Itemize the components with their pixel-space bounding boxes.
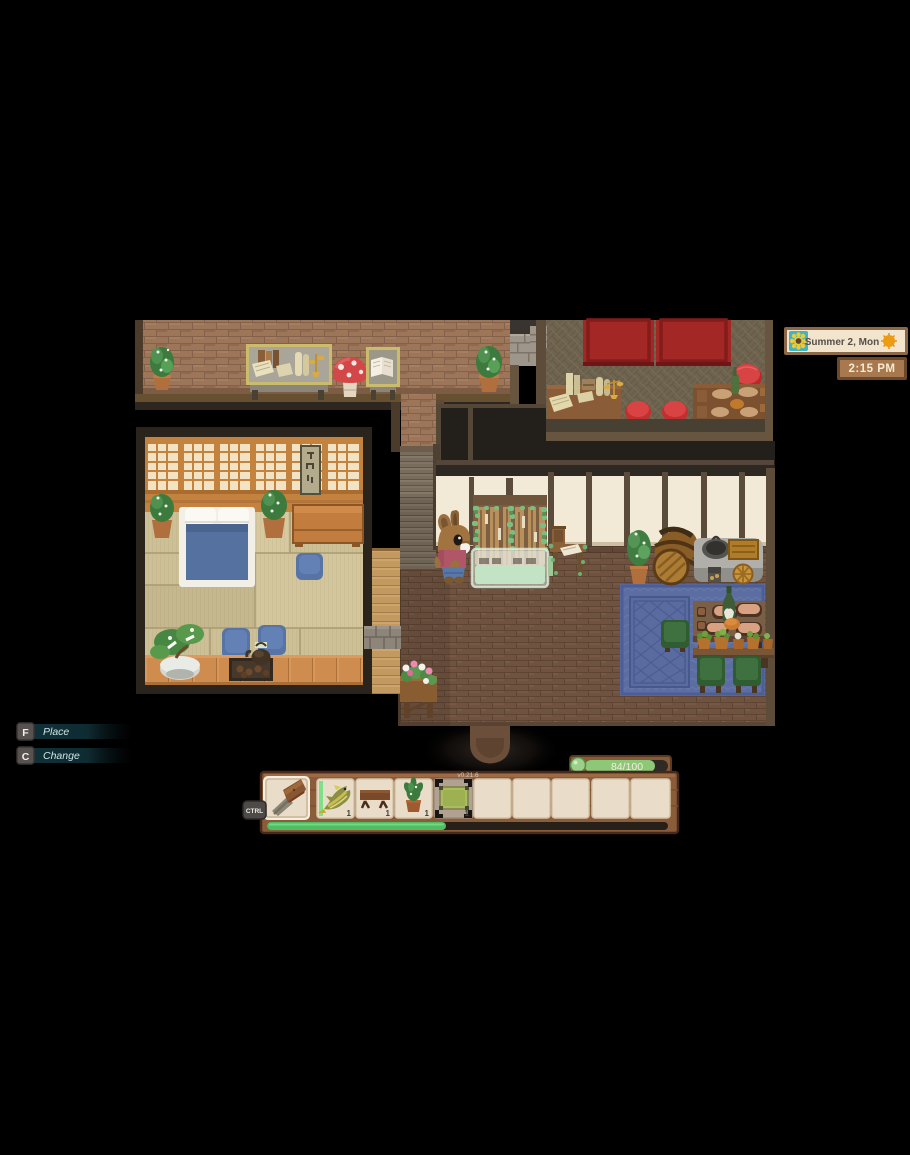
svg-text:C: C xyxy=(22,751,30,763)
svg-text:1: 1 xyxy=(465,809,470,818)
svg-text:1: 1 xyxy=(425,809,430,818)
svg-text:1: 1 xyxy=(347,809,352,818)
svg-text:CTRL: CTRL xyxy=(246,808,263,815)
svg-text:2:15 PM: 2:15 PM xyxy=(849,363,896,375)
svg-text:Summer 2, Mon: Summer 2, Mon xyxy=(805,337,879,348)
svg-text:Change: Change xyxy=(43,750,80,762)
svg-text:v0.21.6: v0.21.6 xyxy=(457,772,479,779)
svg-text:Place: Place xyxy=(43,726,69,738)
svg-text:1: 1 xyxy=(386,809,391,818)
svg-text:F: F xyxy=(22,727,29,739)
